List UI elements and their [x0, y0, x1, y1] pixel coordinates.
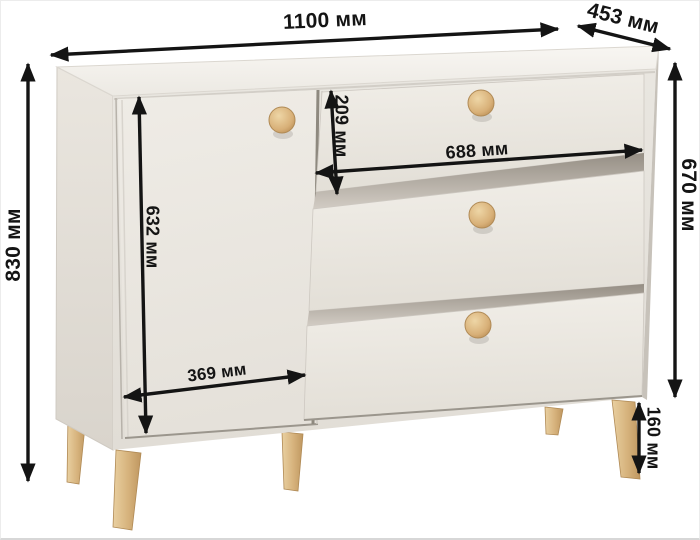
- dim-body-height-label: 670 мм: [676, 158, 700, 231]
- dim-door-height-label: 632 мм: [142, 206, 163, 269]
- dim-drawer-height-label: 209 мм: [331, 95, 352, 158]
- leg-back-right: [545, 407, 563, 435]
- drawer-2-knob: [469, 202, 495, 228]
- drawer-1-knob: [468, 90, 494, 116]
- cabinet-left-face: [56, 67, 113, 450]
- dim-leg-height-label: 160 мм: [643, 407, 664, 470]
- dresser-illustration: [1, 1, 700, 540]
- leg-middle-back: [282, 432, 303, 491]
- dim-total-height-label: 830 мм: [2, 208, 26, 281]
- leg-front-left: [113, 450, 141, 530]
- leg-front-right: [612, 400, 640, 479]
- dim-width-label: 1100 мм: [283, 7, 368, 35]
- drawer-3-knob: [465, 312, 491, 338]
- furniture-dimension-diagram: 1100 мм 453 мм 830 мм 632 мм 209 мм 688 …: [0, 0, 700, 540]
- door-knob: [269, 107, 295, 133]
